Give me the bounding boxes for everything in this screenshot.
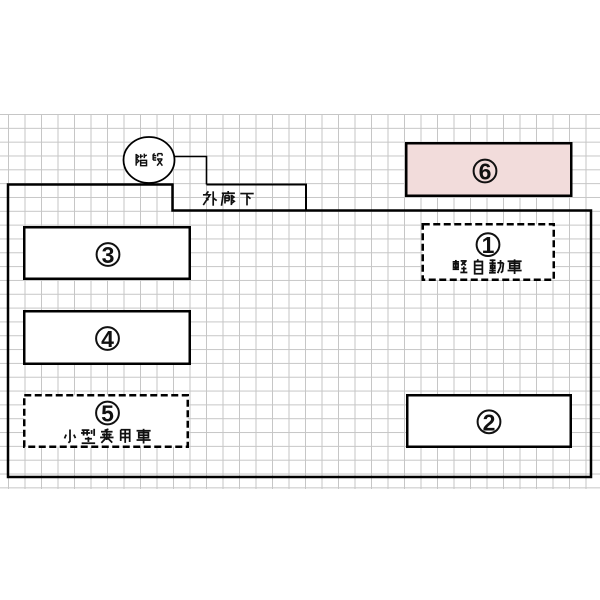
svg-text:1: 1 xyxy=(482,232,495,258)
svg-text:4: 4 xyxy=(101,326,114,352)
svg-text:3: 3 xyxy=(102,242,115,268)
svg-text:2: 2 xyxy=(483,409,496,435)
svg-text:5: 5 xyxy=(101,401,114,427)
svg-text:6: 6 xyxy=(479,159,492,185)
